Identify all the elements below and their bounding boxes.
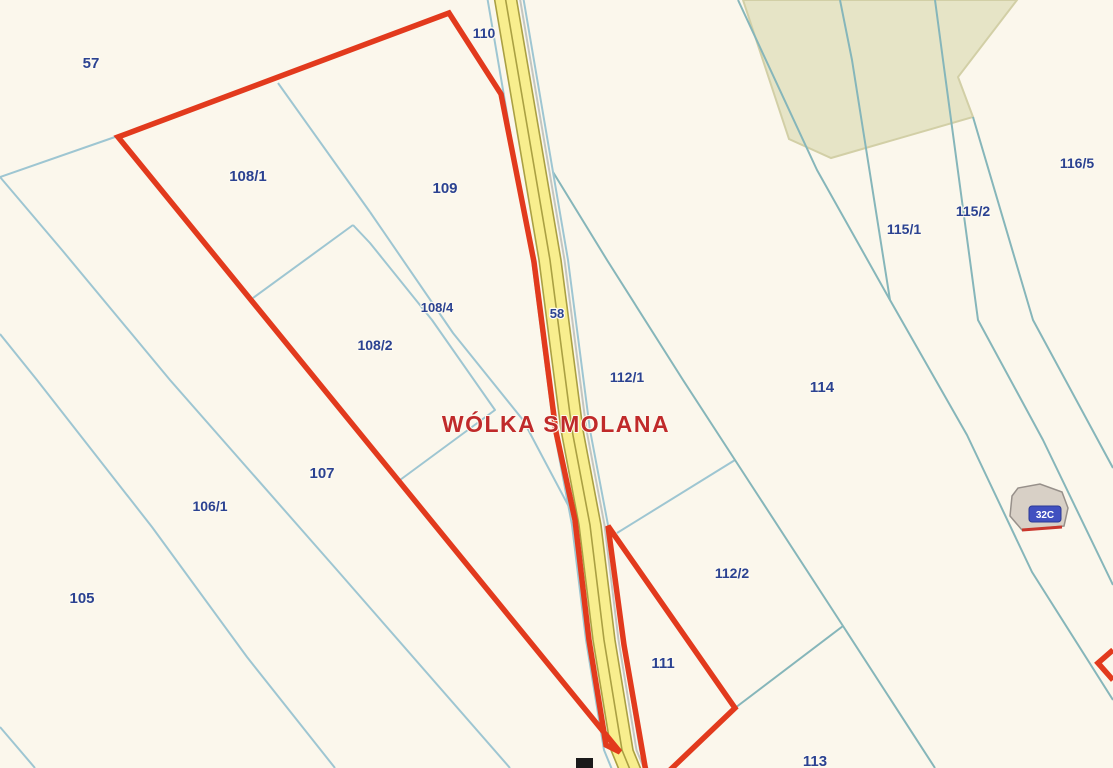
parcel-label-105: 105: [69, 590, 94, 607]
parcel-label-107: 107: [309, 465, 334, 482]
parcel-label-114: 114: [810, 379, 835, 396]
parcel-label-115-2: 115/2: [956, 203, 990, 219]
parcel-label-112-2: 112/2: [715, 565, 749, 581]
parcel-label-57: 57: [83, 55, 100, 72]
parcel-label-109: 109: [432, 180, 457, 197]
parcel-label-111: 111: [651, 655, 674, 672]
map-viewport: 32C57108/1109110108/4108/258107106/11051…: [0, 0, 1113, 768]
parcel-label-108-4: 108/4: [421, 300, 454, 315]
parcel-label-110: 110: [473, 25, 496, 41]
parcel-label-58: 58: [550, 306, 564, 321]
parcel-label-112-1: 112/1: [610, 369, 644, 385]
parcel-label-108-1: 108/1: [229, 168, 267, 185]
place-name-label: WÓLKA SMOLANA: [442, 410, 670, 437]
parcel-label-116-5: 116/5: [1060, 155, 1094, 171]
parcel-label-108-2: 108/2: [357, 337, 392, 353]
cadastral-map[interactable]: 32C57108/1109110108/4108/258107106/11051…: [0, 0, 1113, 768]
parcel-label-115-1: 115/1: [887, 221, 921, 237]
parcel-label-113: 113: [803, 753, 827, 768]
parcel-label-106-1: 106/1: [192, 498, 227, 514]
black-marker: [576, 758, 593, 768]
address-label: 32C: [1036, 510, 1054, 521]
